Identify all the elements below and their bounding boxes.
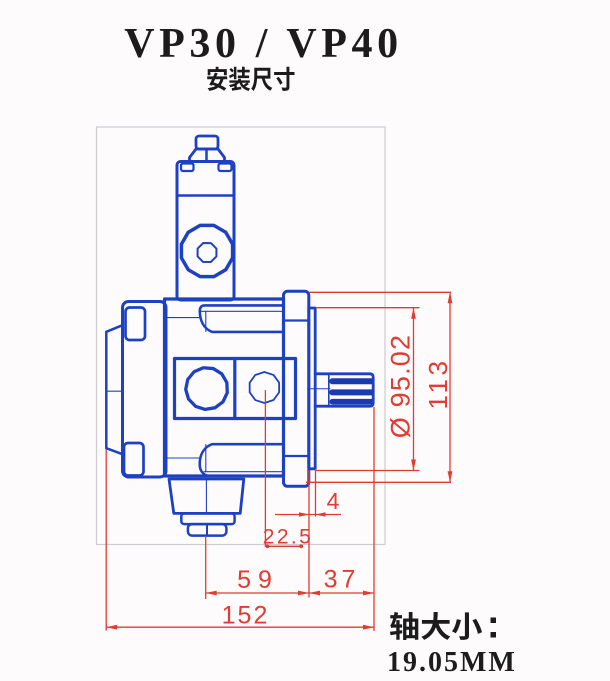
- svg-text:152: 152: [222, 602, 270, 630]
- svg-text:113: 113: [423, 358, 453, 410]
- svg-text:37: 37: [324, 566, 360, 594]
- svg-text:22.5: 22.5: [263, 526, 313, 549]
- svg-text:19.05MM: 19.05MM: [387, 647, 517, 678]
- svg-text:VP30 / VP40: VP30 / VP40: [124, 21, 402, 67]
- svg-text:Ø 95.02: Ø 95.02: [386, 334, 416, 438]
- svg-text:59: 59: [237, 566, 279, 594]
- svg-text:4: 4: [327, 488, 340, 514]
